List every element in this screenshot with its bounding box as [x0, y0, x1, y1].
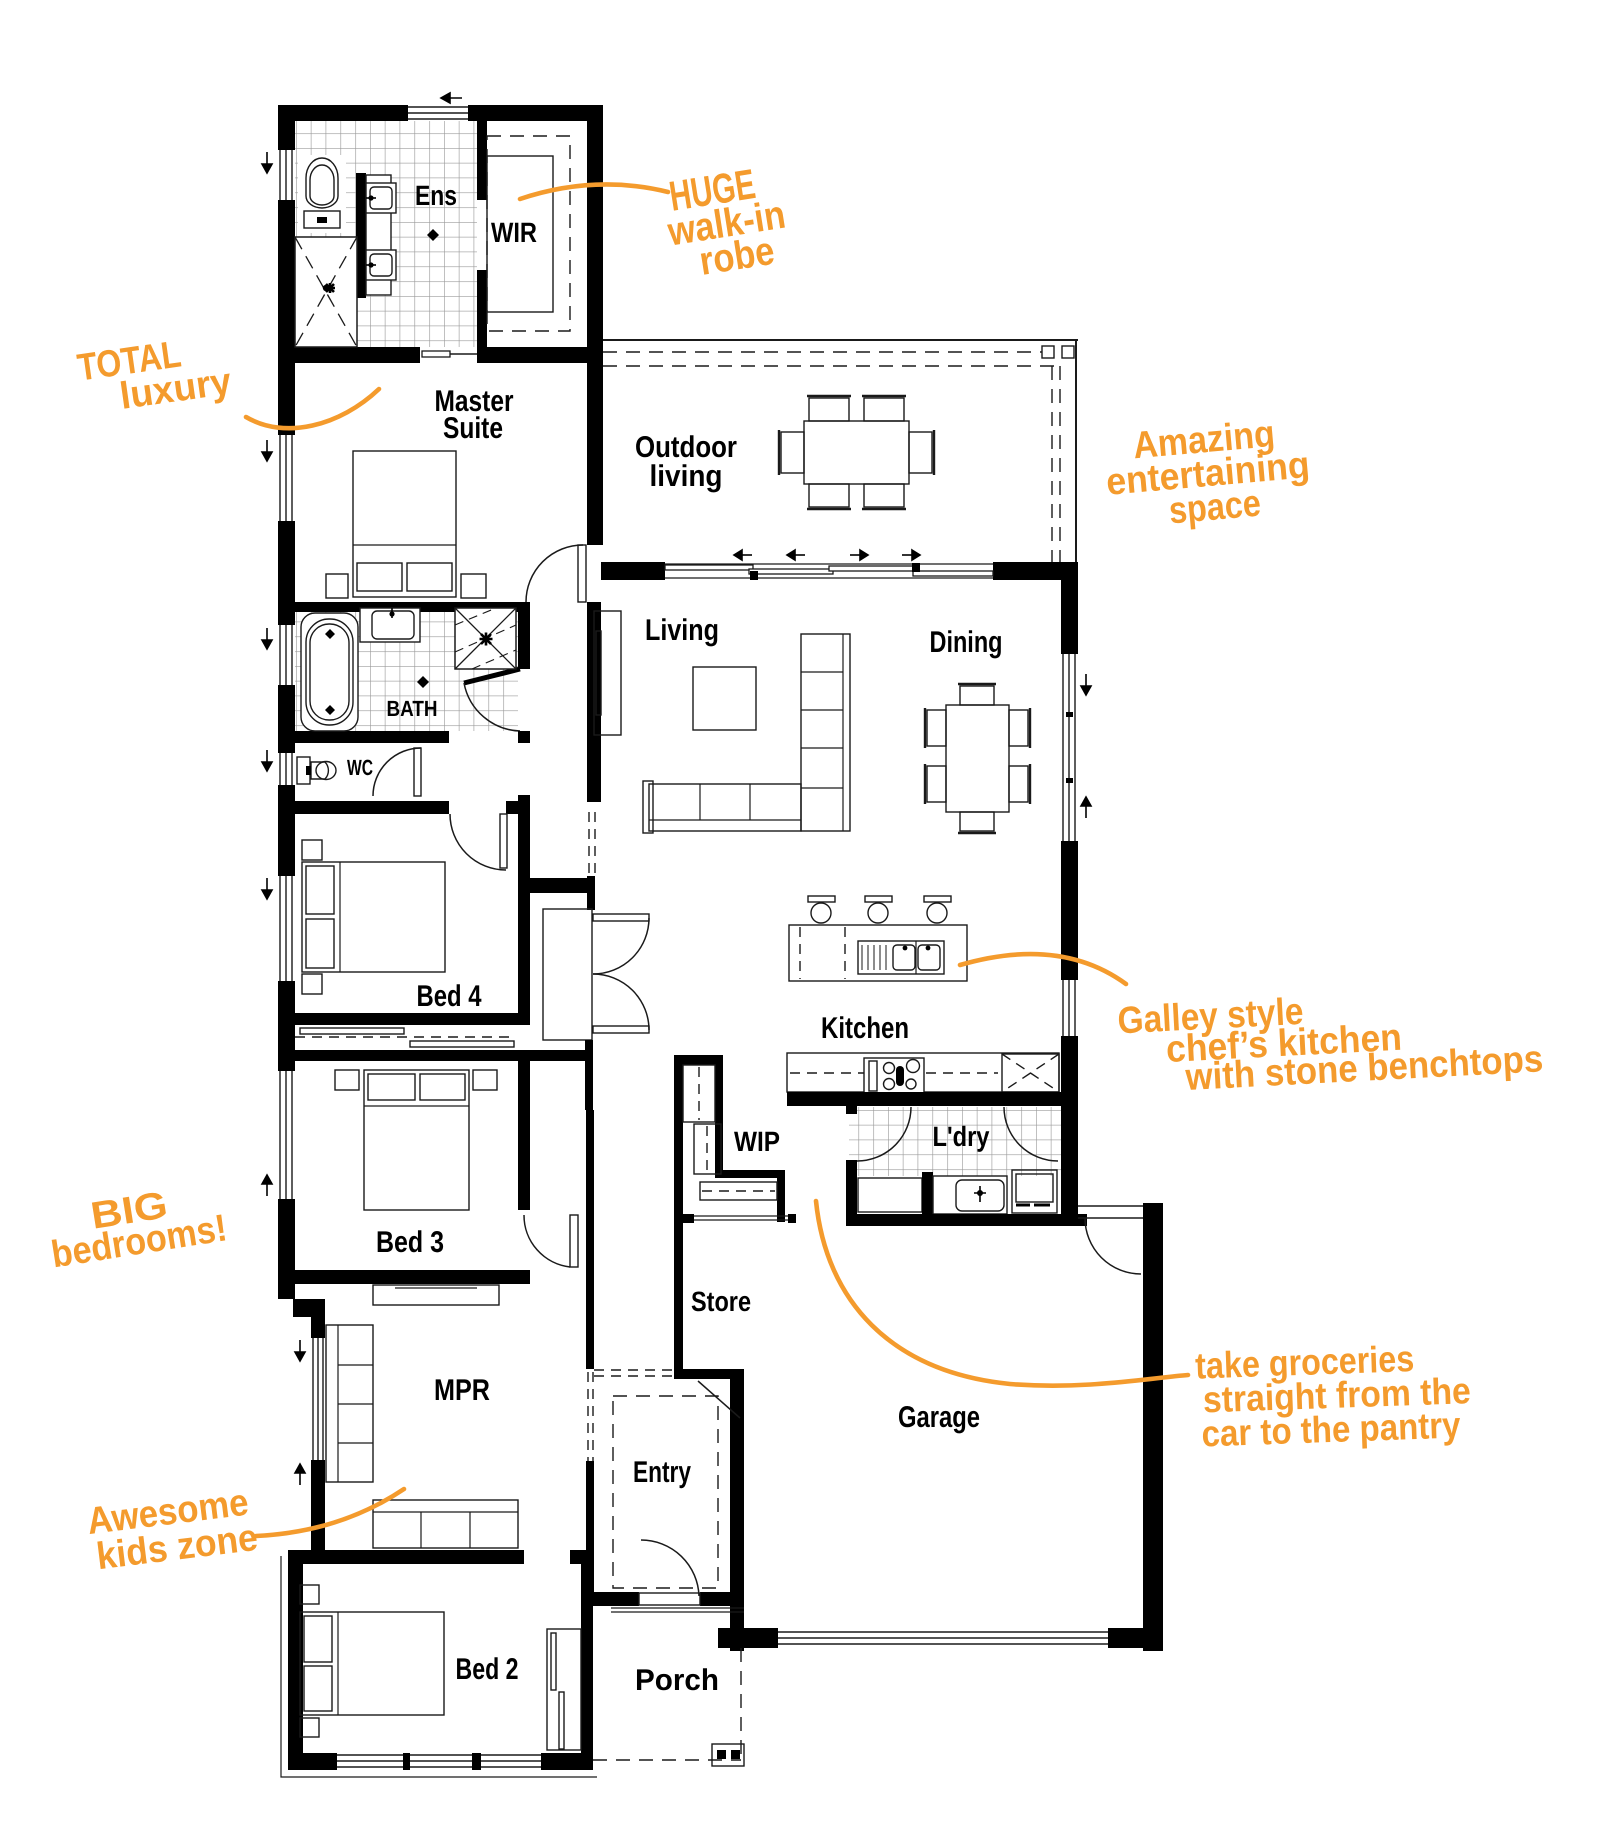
svg-text:living: living	[650, 460, 723, 493]
svg-text:Ens: Ens	[415, 180, 457, 211]
svg-text:Garage: Garage	[898, 1401, 980, 1434]
svg-text:Bed 4: Bed 4	[417, 980, 482, 1013]
svg-text:WIR: WIR	[491, 217, 537, 248]
svg-text:Entry: Entry	[633, 1456, 691, 1489]
svg-text:WC: WC	[347, 755, 373, 780]
svg-text:Kitchen: Kitchen	[821, 1012, 909, 1045]
svg-text:L'dry: L'dry	[933, 1121, 990, 1152]
svg-text:Living: Living	[645, 614, 719, 647]
svg-text:WIP: WIP	[734, 1126, 780, 1157]
svg-text:Suite: Suite	[443, 412, 503, 445]
svg-text:Bed 2: Bed 2	[456, 1653, 519, 1686]
svg-text:BATH: BATH	[387, 696, 438, 721]
svg-text:Bed 3: Bed 3	[376, 1226, 444, 1259]
svg-text:Porch: Porch	[635, 1664, 719, 1697]
svg-text:Store: Store	[691, 1286, 751, 1317]
svg-text:space: space	[1167, 483, 1262, 533]
svg-text:Dining: Dining	[930, 626, 1003, 659]
svg-text:MPR: MPR	[434, 1374, 490, 1407]
